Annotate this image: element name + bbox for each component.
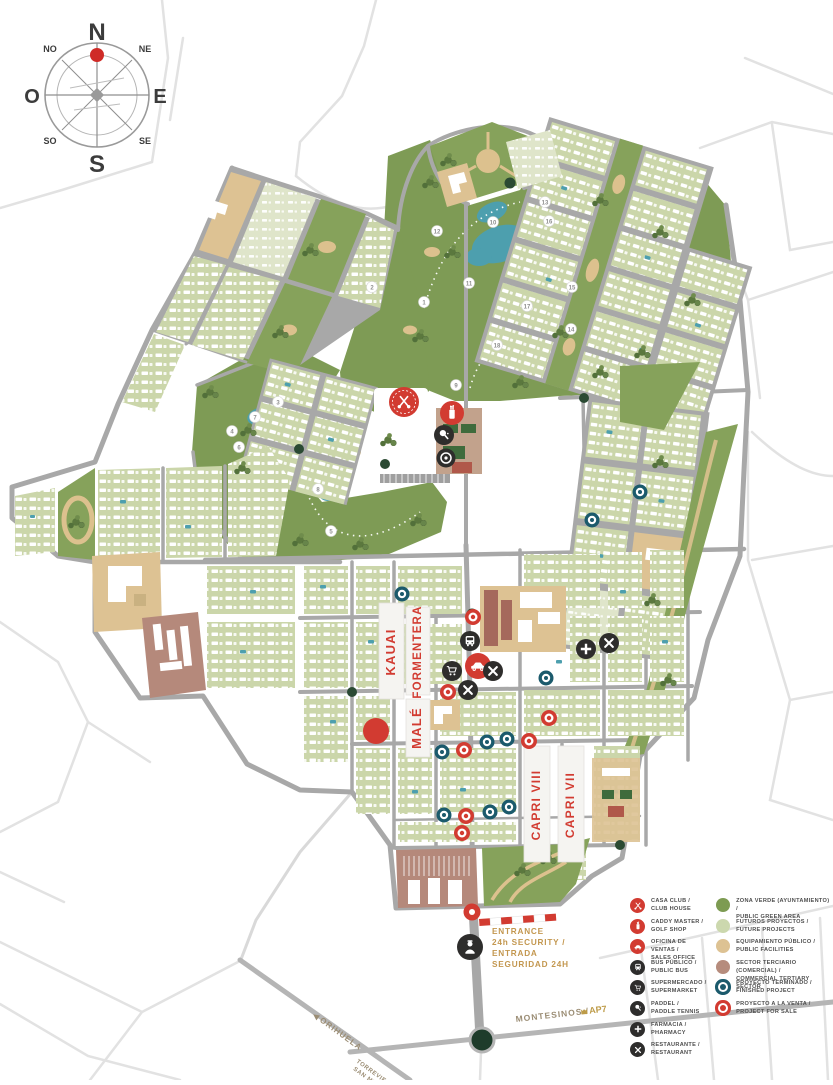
district-label-formentera: FORMENTERA xyxy=(412,605,424,698)
svg-text:11: 11 xyxy=(466,282,473,288)
project-for-sale-swatch xyxy=(720,1005,726,1011)
legend-item-supermarket: SUPERMERCADO /SUPERMARKET xyxy=(630,979,709,1000)
paddle-icon xyxy=(630,1001,645,1016)
svg-text:O: O xyxy=(24,86,40,108)
cross-icon xyxy=(630,1022,645,1037)
legend-item-club-house: CASA CLUB /CLUB HOUSE xyxy=(630,897,709,918)
bus-icon xyxy=(630,960,645,975)
compass-rose: N S E O NO NE SO SE xyxy=(24,19,166,178)
legend-item-pharmacy: FARMACIA /PHARMACY xyxy=(630,1021,709,1042)
legend-item-public-bus: BUS PÚBLICO /PUBLIC BUS xyxy=(630,959,709,980)
legend-item-sales-office: OFICINA DE VENTAS /SALES OFFICE xyxy=(630,938,709,959)
west-residential xyxy=(15,446,290,560)
golf-bag-icon xyxy=(630,919,645,934)
cart-icon xyxy=(630,980,645,995)
legend-item-caddy-master: CADDY MASTER /GOLF SHOP xyxy=(630,918,709,939)
svg-text:MONTESINOS /: MONTESINOS / xyxy=(515,1006,590,1024)
facility-male xyxy=(428,700,460,730)
svg-text:AP7: AP7 xyxy=(589,1004,608,1016)
legend-item-green-area: ZONA VERDE (AYUNTAMIENTO) /PUBLIC GREEN … xyxy=(716,897,833,918)
tertiary-sector-swatch xyxy=(716,960,730,974)
district-label-capri-viii: CAPRI VIII xyxy=(529,770,543,841)
legend-item-project-for-sale: PROYECTO A LA VENTA /PROJECT FOR SALE xyxy=(716,1000,833,1021)
supermarket-marker xyxy=(442,661,462,681)
svg-text:12: 12 xyxy=(434,230,441,236)
map-legend: CASA CLUB /CLUB HOUSE CADDY MASTER /GOLF… xyxy=(630,897,833,1062)
svg-text:16: 16 xyxy=(546,220,553,226)
montesinos-label: MONTESINOS / AP7 xyxy=(515,1004,607,1024)
paddle-marker-2 xyxy=(437,449,456,468)
golf-clubs-icon xyxy=(630,898,645,913)
restaurant-marker-2 xyxy=(458,680,478,700)
restaurant-marker xyxy=(483,661,503,681)
public-facilities-swatch xyxy=(716,939,730,953)
district-label-capri-vii: CAPRI VII xyxy=(563,772,577,838)
svg-text:ENTRANCE: ENTRANCE xyxy=(492,927,544,936)
svg-text:ENTRADA: ENTRADA xyxy=(492,949,538,958)
svg-text:10: 10 xyxy=(490,221,497,227)
svg-text:24h SECURITY /: 24h SECURITY / xyxy=(492,938,565,947)
entrance-label: ENTRANCE 24h SECURITY / ENTRADA SEGURIDA… xyxy=(492,927,569,969)
svg-text:SE: SE xyxy=(139,136,151,146)
svg-text:13: 13 xyxy=(542,201,549,207)
svg-text:18: 18 xyxy=(494,344,501,350)
svg-text:E: E xyxy=(153,86,166,108)
club-house-marker xyxy=(389,387,419,417)
masterplan-page: 1 2 3 4 5 6 7 8 9 10 11 12 13 14 15 16 1… xyxy=(0,0,833,1080)
svg-text:14: 14 xyxy=(568,328,575,334)
restaurant-marker-3 xyxy=(599,633,619,653)
highlight-dot xyxy=(363,718,389,744)
legend-item-finished-project: PROYECTO TERMINADO /FINISHED PROJECT xyxy=(716,979,833,1000)
car-icon xyxy=(630,939,645,954)
future-projects-swatch xyxy=(716,919,730,933)
svg-text:SO: SO xyxy=(43,136,56,146)
district-label-male: MALÉ xyxy=(409,707,424,749)
svg-text:15: 15 xyxy=(569,286,576,292)
legend-item-paddle: PADDEL /PADDLE TENNIS xyxy=(630,1000,709,1021)
legend-zones-column: ZONA VERDE (AYUNTAMIENTO) /PUBLIC GREEN … xyxy=(716,897,833,1062)
paddle-courts-east xyxy=(592,758,640,842)
orihuela-label: ◀ ORIHUELA xyxy=(311,1010,364,1052)
legend-item-future-projects: FUTUROS PROYECTOS /FUTURE PROJECTS xyxy=(716,918,833,939)
bus-marker xyxy=(460,631,480,651)
svg-text:SEGURIDAD 24H: SEGURIDAD 24H xyxy=(492,960,569,969)
roundabout xyxy=(470,1028,494,1052)
legend-item-public-facilities: EQUIPAMIENTO PÚBLICO /PUBLIC FACILITIES xyxy=(716,938,833,959)
legend-services-column: CASA CLUB /CLUB HOUSE CADDY MASTER /GOLF… xyxy=(630,897,709,1062)
district-label-kauai: KAUAI xyxy=(383,628,398,675)
caddy-master-marker xyxy=(440,401,464,425)
security-guard-marker xyxy=(457,934,483,960)
paddle-marker xyxy=(434,425,454,445)
svg-text:NE: NE xyxy=(139,44,152,54)
tertiary-southwest xyxy=(142,612,206,698)
legend-item-tertiary-sector: SECTOR TERCIARIO (COMERCIAL) /COMMERCIAL… xyxy=(716,959,833,980)
svg-text:S: S xyxy=(89,151,105,178)
entrance-barrier xyxy=(479,914,556,926)
cutlery-icon xyxy=(630,1042,645,1057)
compass-marker-dot xyxy=(90,48,104,62)
pharmacy-marker xyxy=(576,639,596,659)
svg-text:17: 17 xyxy=(524,305,531,311)
green-area-swatch xyxy=(716,898,730,912)
finished-project-swatch xyxy=(720,984,726,990)
southwest-park xyxy=(58,468,95,560)
svg-text:ORIHUELA: ORIHUELA xyxy=(318,1016,364,1053)
svg-text:NO: NO xyxy=(43,44,57,54)
tertiary-south xyxy=(396,848,478,908)
commercial-center xyxy=(480,586,566,652)
svg-text:N: N xyxy=(88,19,105,46)
legend-item-restaurant: RESTAURANTE /RESTAURANT xyxy=(630,1041,709,1062)
